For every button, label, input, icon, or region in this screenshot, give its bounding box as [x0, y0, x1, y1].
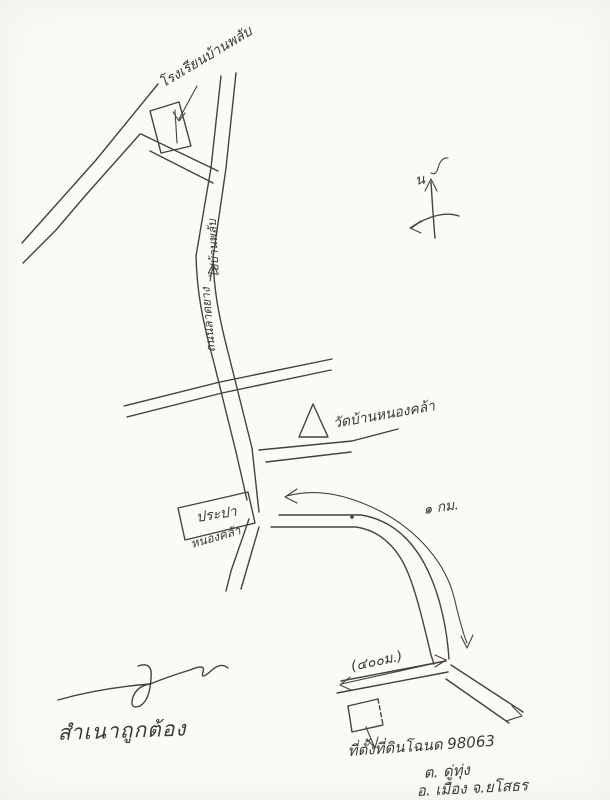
curve-start-arrowhead-icon: [285, 489, 297, 503]
north-arrow-icon: [410, 158, 459, 238]
school-pointer-arrow: [179, 86, 197, 119]
certified-copy-label: สำเนาถูกต้อง: [57, 716, 187, 746]
village-label: หนองคล้า: [189, 523, 243, 551]
waterworks-label: ประปา: [195, 504, 239, 526]
temple-side-road: [259, 429, 398, 462]
map-canvas: โรงเรียนบ้านพลับ ไปบ้านพลับ ถนนลาดยาง วั…: [0, 0, 610, 800]
north-label: น: [414, 171, 427, 188]
curve-road-dot: [350, 515, 354, 519]
temple-label: วัดบ้านหนองคล้า: [332, 398, 437, 432]
road-destination-label: ไปบ้านพลับ: [205, 217, 222, 278]
road-surface-label: ถนนลาดยาง: [198, 286, 218, 353]
arrow-right-head-icon: [435, 655, 446, 667]
school-label: โรงเรียนบ้านพลับ: [156, 22, 256, 91]
map-drawing: [22, 73, 523, 748]
road-end-arrowhead-icon: [506, 706, 522, 721]
curve-end-arrowhead-icon: [461, 635, 473, 648]
cross-road: [124, 359, 332, 417]
scanned-sketch-map: โรงเรียนบ้านพลับ ไปบ้านพลับ ถนนลาดยาง วั…: [0, 0, 610, 800]
road-northwest: [22, 84, 158, 263]
road-east-curve: [271, 515, 523, 723]
road-branch-to-main: [141, 134, 218, 183]
signature: [58, 665, 228, 707]
distance-km-label: ๑ กม.: [422, 497, 459, 518]
temple-symbol: [299, 404, 328, 437]
labels-layer: โรงเรียนบ้านพลับ ไปบ้านพลับ ถนนลาดยาง วั…: [57, 22, 530, 800]
school-plot: [150, 86, 197, 153]
